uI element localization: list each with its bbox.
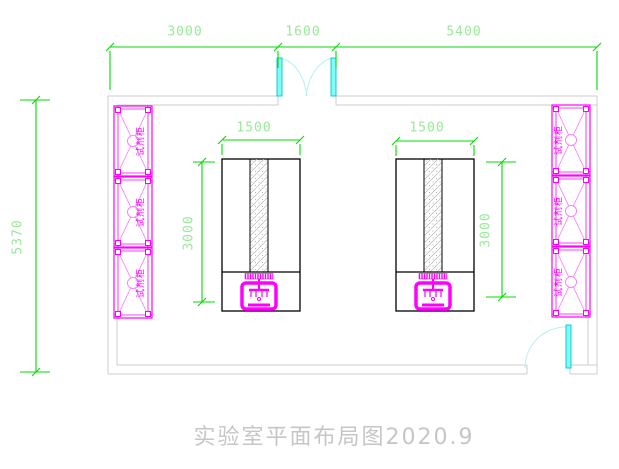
dim-label-bench-left-width: 1500 bbox=[236, 122, 271, 135]
door-leaf-right bbox=[331, 58, 336, 96]
dimension-top bbox=[106, 43, 601, 90]
dimension-bench-left-width bbox=[218, 136, 304, 155]
dim-label-bench-right-width: 1500 bbox=[409, 122, 444, 135]
dim-label-bench-left-depth: 3000 bbox=[183, 215, 196, 250]
drawing-title: 实验室平面布局图2020.9 bbox=[194, 427, 475, 449]
bottom-door bbox=[525, 325, 571, 368]
cabinet-right-1-label: 试剂柜 bbox=[556, 125, 565, 155]
dim-label-left-height: 5370 bbox=[12, 219, 25, 254]
top-double-door bbox=[277, 58, 336, 96]
door-leaf-bottom bbox=[566, 325, 571, 368]
dim-label-top-right: 5400 bbox=[446, 26, 481, 39]
bench-right bbox=[396, 159, 474, 311]
dim-label-top-middle: 1600 bbox=[285, 26, 320, 39]
dim-label-top-left: 3000 bbox=[167, 26, 202, 39]
cabinet-right-3-label: 试剂柜 bbox=[556, 267, 565, 297]
cabinet-left-1-label: 试剂柜 bbox=[138, 126, 147, 156]
cabinet-left-2-label: 试剂柜 bbox=[138, 197, 147, 227]
dimension-bench-right-width bbox=[392, 137, 478, 156]
dim-label-bench-right-depth: 3000 bbox=[480, 212, 493, 247]
cabinet-right-2-label: 试剂柜 bbox=[556, 196, 565, 226]
cad-floor-plan-viewport: 3000 1600 5400 5370 1500 1500 3000 3000 … bbox=[0, 0, 619, 469]
cabinet-left-3-label: 试剂柜 bbox=[138, 268, 147, 298]
bench-left bbox=[222, 159, 300, 311]
floor-plan-drawing bbox=[0, 0, 619, 469]
